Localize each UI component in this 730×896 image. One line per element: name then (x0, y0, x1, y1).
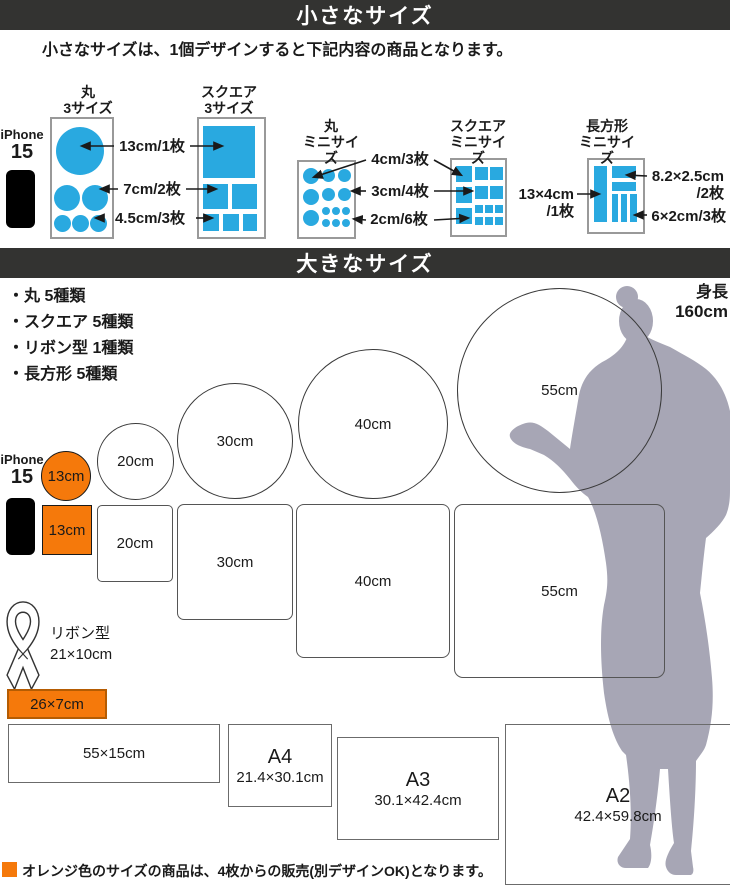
size-infographic: 小さなサイズ 小さなサイズは、1個デザインすると下記内容の商品となります。 丸 … (0, 0, 730, 896)
blue-circle-4cm (303, 168, 319, 184)
blue-square-4cm (456, 208, 472, 224)
label-7cm-2pc: 7cm/2枚 (112, 181, 192, 198)
orange-note: オレンジ色のサイズの商品は、4枚からの販売(別デザインOK)となります。 (22, 861, 492, 881)
blue-circle-2cm (322, 207, 330, 215)
blue-bar-82x25 (612, 182, 636, 191)
orange-swatch (2, 862, 17, 877)
blue-square-2cm (495, 217, 503, 225)
rect-a3: A3 30.1×42.4cm (337, 737, 499, 840)
square-30cm: 30cm (177, 504, 293, 620)
blue-circle-2cm (322, 219, 330, 227)
label-82x25-2pc: 8.2×2.5cm /2枚 (650, 168, 724, 202)
square-55cm: 55cm (454, 504, 665, 678)
label-13x4-1pc: 13×4cm /1枚 (504, 186, 574, 220)
blue-square-3cm (490, 167, 503, 180)
bullet-rectangle: ・長方形 5種類 (8, 362, 133, 388)
ribbon-label-size: 21×10cm (50, 646, 112, 663)
blue-bar-6x2 (612, 194, 618, 222)
blue-circle-4cm (303, 210, 319, 226)
blue-bar-13x4 (594, 166, 607, 222)
blue-square-2cm (485, 205, 493, 213)
circle-13cm: 13cm (41, 451, 91, 501)
label-6x2-3pc: 6×2cm/3枚 (650, 208, 726, 225)
blue-square-4cm (456, 166, 472, 182)
blue-circle-3cm (338, 188, 351, 201)
blue-circle-3cm (322, 169, 335, 182)
circle-40cm: 40cm (298, 349, 448, 499)
iphone-shape-large (6, 498, 35, 555)
label-3cm-4pc: 3cm/4枚 (368, 183, 432, 200)
small-sizes-subtitle: 小さなサイズは、1個デザインすると下記内容の商品となります。 (42, 36, 512, 60)
blue-circle-2cm (332, 219, 340, 227)
label-4cm-3pc: 4cm/3枚 (368, 151, 432, 168)
blue-square-45 (223, 214, 239, 231)
square-mini-title: スクエア ミニサイズ (444, 118, 512, 166)
large-sizes-header-bar: 大きなサイズ (0, 248, 730, 278)
blue-square-13cm (203, 126, 255, 178)
blue-circle-45 (72, 215, 89, 232)
label-2cm-6pc: 2cm/6枚 (367, 211, 431, 228)
bullet-round: ・丸 5種類 (8, 284, 133, 310)
height-label: 身長 160cm (655, 283, 728, 322)
rect-a2: A2 42.4×59.8cm (505, 724, 730, 885)
ribbon-shape (2, 601, 44, 691)
rect-a4: A4 21.4×30.1cm (228, 724, 332, 807)
circle-55cm: 55cm (457, 288, 662, 493)
iphone-shape-small (6, 170, 35, 228)
circle-20cm: 20cm (97, 423, 174, 500)
blue-square-45 (203, 214, 219, 231)
blue-bar-6x2 (621, 194, 627, 222)
large-sizes-bullet-list: ・丸 5種類 ・スクエア 5種類 ・リボン型 1種類 ・長方形 5種類 (8, 284, 133, 388)
square-3sizes-title: スクエア 3サイズ (194, 84, 264, 116)
round-mini-title: 丸 ミニサイズ (300, 118, 362, 166)
large-sizes-title: 大きなサイズ (296, 248, 433, 278)
blue-circle-4cm (303, 189, 319, 205)
blue-square-2cm (475, 217, 483, 225)
blue-square-2cm (485, 217, 493, 225)
blue-square-7cm (232, 184, 257, 209)
blue-square-7cm (203, 184, 228, 209)
blue-bar-82x25 (612, 166, 636, 178)
bullet-square: ・スクエア 5種類 (8, 310, 133, 336)
blue-circle-2cm (332, 207, 340, 215)
blue-bar-6x2 (630, 194, 637, 222)
rect-mini-title: 長方形 ミニサイズ (574, 118, 640, 166)
blue-circle-2cm (342, 207, 350, 215)
rect-mini-card (587, 158, 645, 234)
blue-circle-13cm (56, 127, 104, 175)
label-45cm-3pc: 4.5cm/3枚 (103, 210, 197, 227)
small-sizes-title: 小さなサイズ (296, 0, 433, 30)
iphone-15-label-large: iPhone 15 (0, 452, 44, 487)
blue-circle-45 (54, 215, 71, 232)
square-3sizes-card (197, 117, 266, 239)
blue-square-3cm (475, 186, 488, 199)
blue-circle-3cm (322, 188, 335, 201)
round-mini-card (297, 160, 356, 239)
bullet-ribbon: ・リボン型 1種類 (8, 336, 133, 362)
square-20cm: 20cm (97, 505, 173, 582)
circle-30cm: 30cm (177, 383, 293, 499)
blue-circle-2cm (342, 219, 350, 227)
blue-circle-3cm (338, 169, 351, 182)
ribbon-label-type: リボン型 (50, 622, 110, 643)
round-3sizes-title: 丸 3サイズ (56, 84, 120, 116)
blue-circle-7cm (54, 185, 80, 211)
square-13cm: 13cm (42, 505, 92, 555)
blue-square-2cm (475, 205, 483, 213)
blue-square-2cm (495, 205, 503, 213)
label-13cm-1pc: 13cm/1枚 (112, 138, 192, 155)
blue-square-4cm (456, 187, 472, 203)
rect-26x7: 26×7cm (7, 689, 107, 719)
square-mini-card (450, 158, 507, 237)
blue-square-3cm (475, 167, 488, 180)
blue-square-45 (243, 214, 257, 231)
blue-square-3cm (490, 186, 503, 199)
rect-55x15: 55×15cm (8, 724, 220, 783)
square-40cm: 40cm (296, 504, 450, 658)
blue-circle-7cm (82, 185, 108, 211)
iphone-15-label-small: iPhone 15 (0, 127, 44, 162)
small-sizes-header-bar: 小さなサイズ (0, 0, 730, 30)
